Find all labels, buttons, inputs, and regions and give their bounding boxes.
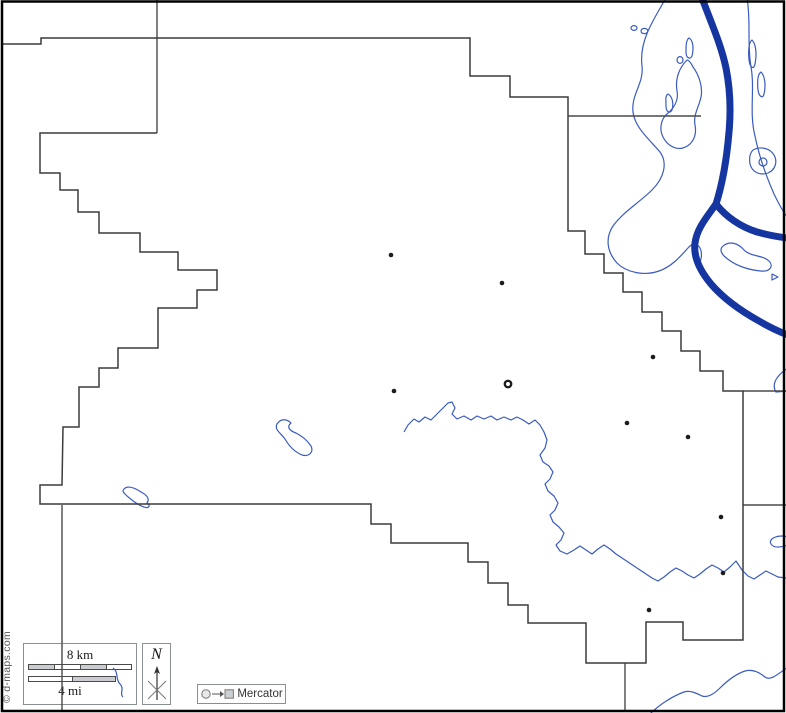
- scale-km-label: 8 km: [24, 647, 136, 663]
- north-box: N: [142, 643, 171, 705]
- compass-rose-icon: [145, 664, 169, 702]
- town-dot-9: [647, 608, 652, 613]
- islet-c: [677, 57, 683, 64]
- fish-blob: [721, 243, 771, 271]
- copyright-credit: © d-maps.com: [1, 631, 13, 703]
- town-dot-4: [392, 389, 397, 394]
- floodplain-west-lobe: [608, 0, 701, 273]
- river-branch-east: [716, 204, 786, 238]
- projection-legend: Mercator: [197, 684, 286, 704]
- town-dot-5: [625, 421, 630, 426]
- county-outline: [3, 38, 743, 663]
- north-label: N: [143, 646, 170, 664]
- fish-fin: [772, 274, 778, 280]
- town-dot-3: [651, 355, 656, 360]
- right-edge-curl: [774, 368, 786, 392]
- km-bar-segment-3: [80, 664, 106, 670]
- map-stage: 8 km 4 mi N Mercator © d-maps.com: [0, 0, 786, 713]
- town-dot-6: [686, 435, 691, 440]
- islet-d: [686, 38, 693, 58]
- scale-km-bar: [28, 664, 132, 670]
- islet-a: [631, 26, 637, 31]
- right-edge-hook: [770, 536, 786, 547]
- projection-name: Mercator: [237, 688, 282, 700]
- town-dot-7: [719, 515, 724, 520]
- km-bar-segment-2: [54, 664, 80, 670]
- projection-symbols-icon: [200, 688, 234, 700]
- central-creek: [404, 402, 786, 581]
- southwest-pond: [123, 487, 149, 507]
- oxbow-ring: [759, 158, 767, 166]
- islet-e: [666, 94, 673, 112]
- bottomright-creek: [650, 667, 786, 713]
- main-river: [702, 0, 730, 204]
- county-seat-marker: [505, 381, 511, 387]
- mi-bar-segment-1: [28, 676, 72, 682]
- map-frame: [2, 2, 784, 712]
- floodplain-east-outline: [747, 0, 786, 218]
- center-lake: [276, 420, 312, 456]
- islet-g: [758, 72, 765, 97]
- mi-bar-segment-2: [72, 676, 116, 682]
- km-bar-segment-4: [106, 664, 132, 670]
- islet-f: [749, 40, 756, 67]
- town-dot-8: [721, 571, 726, 576]
- km-bar-segment-1: [28, 664, 54, 670]
- islet-b: [641, 28, 648, 33]
- river-branch-south: [695, 204, 786, 335]
- scale-mi-label: 4 mi: [14, 683, 126, 699]
- scale-box: 8 km 4 mi: [23, 643, 137, 705]
- oxbow-blob: [750, 148, 776, 174]
- scale-mi-bar: [28, 676, 116, 682]
- floodplain-inner-blob: [661, 60, 702, 148]
- town-dot-2: [500, 281, 505, 286]
- town-dot-1: [389, 253, 394, 258]
- map-svg: [0, 0, 786, 713]
